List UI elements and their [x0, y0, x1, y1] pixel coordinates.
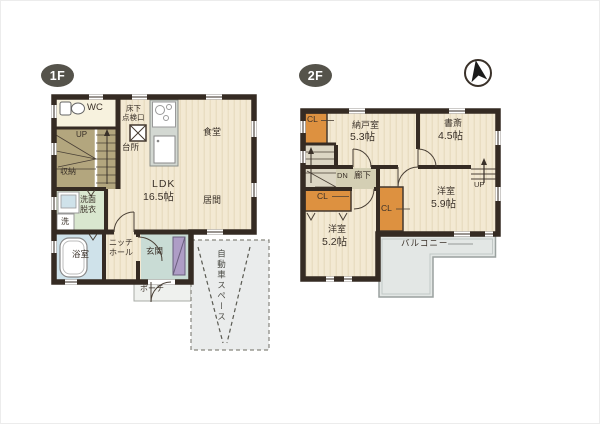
parking-area — [191, 240, 269, 350]
floor-1-badge: 1F — [41, 64, 74, 87]
label-storage-room: 納戸室 — [352, 121, 379, 130]
label-storage-size: 5.3帖 — [350, 132, 375, 143]
label-porch: ポーチ — [140, 285, 164, 293]
label-balcony: バルコニー — [401, 239, 448, 248]
floor-plan-canvas: 1F 2F WC UP 収納 洗面 脱衣 洗 浴室 ニッチ ホール 玄関 ポーチ… — [0, 0, 600, 424]
label-dn: DN — [337, 172, 348, 180]
label-bedroom-a: 洋室 — [437, 187, 455, 196]
label-hall: 廊下 — [354, 171, 371, 180]
label-washroom-1: 洗面 — [80, 196, 96, 204]
label-entry: 玄関 — [146, 247, 163, 256]
label-bedroom-b-size: 5.2帖 — [322, 237, 347, 248]
label-living: 居間 — [203, 196, 221, 205]
label-hatch-1: 床下 — [126, 105, 141, 113]
north-compass-icon — [465, 59, 491, 86]
kitchen-sink-icon — [153, 102, 176, 127]
label-up-1f: UP — [76, 131, 87, 139]
label-washer: 洗 — [61, 218, 69, 226]
label-cl-mid: CL — [317, 192, 328, 201]
label-niche-1: ニッチ — [109, 239, 133, 247]
floor-2-badge: 2F — [299, 64, 332, 87]
label-up-2f: UP — [474, 181, 484, 189]
label-closet-1f: 収納 — [60, 168, 76, 176]
label-cl-top: CL — [307, 115, 318, 124]
closet-mid-fill — [305, 190, 351, 211]
label-hatch-2: 点検口 — [122, 114, 145, 122]
label-niche-2: ホール — [109, 249, 133, 257]
label-cl-center: CL — [381, 204, 392, 213]
label-bedroom-a-size: 5.9帖 — [431, 199, 456, 210]
label-study: 書斎 — [444, 119, 462, 128]
label-ldk-size: 16.5帖 — [143, 192, 174, 203]
label-ldk: LDK — [152, 179, 175, 190]
label-study-size: 4.5帖 — [438, 131, 463, 142]
label-parking: 自動車スペース — [217, 249, 226, 329]
label-wc: WC — [87, 103, 103, 113]
label-washroom-2: 脱衣 — [80, 206, 96, 214]
floor-2-plan — [301, 109, 501, 298]
label-bedroom-b: 洋室 — [328, 225, 346, 234]
label-dining: 食堂 — [203, 128, 221, 137]
label-bath: 浴室 — [72, 250, 89, 259]
toilet-icon — [60, 102, 71, 115]
label-kitchen: 台所 — [122, 143, 139, 152]
